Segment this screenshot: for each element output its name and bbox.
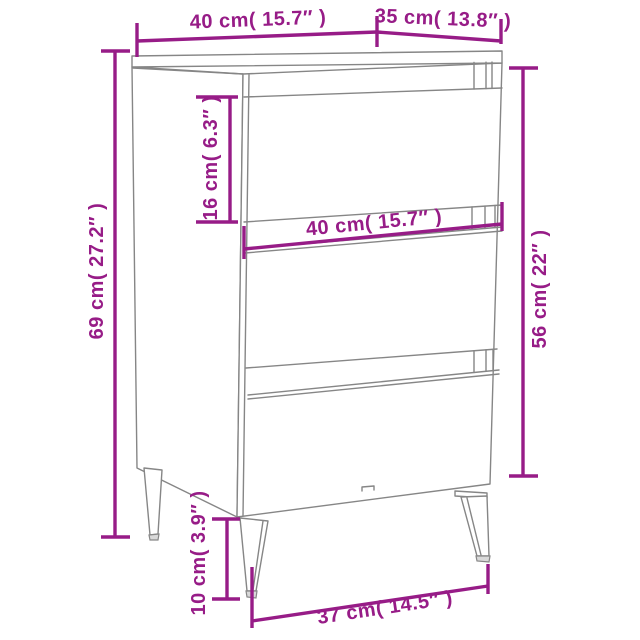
cabinet-leg-front-right: [455, 491, 490, 562]
dim-label-leg-height: 10 cm( 3.9″ ): [188, 490, 210, 615]
cabinet-leg-front-left: [240, 518, 268, 598]
dim-label-total-height: 69 cm( 27.2″ ): [86, 203, 108, 340]
cabinet-front-face: [237, 63, 502, 517]
cabinet-leg-back-left: [144, 468, 162, 540]
dim-total-height: 69 cm( 27.2″ ): [86, 51, 130, 537]
product-dimension-image: 40 cm( 15.7″ ) 35 cm( 13.8″ ) 69 cm( 27.…: [0, 0, 640, 640]
cabinet-side-panel: [132, 67, 243, 517]
dim-drawer-height: 16 cm( 6.3″ ): [196, 95, 238, 222]
dim-label-drawer-height: 16 cm( 6.3″ ): [200, 95, 222, 220]
dim-leg-span: 37 cm( 14.5″ ): [252, 564, 488, 629]
cabinet-top-slab: [132, 51, 502, 67]
dim-top-width: 40 cm( 15.7″ ): [137, 6, 377, 57]
dim-label-top-depth: 35 cm( 13.8″ ): [374, 5, 511, 33]
dim-line-top-depth: [377, 32, 501, 41]
dim-label-leg-span: 37 cm( 14.5″ ): [316, 587, 454, 629]
dim-label-body-height: 56 cm( 22″ ): [529, 230, 551, 349]
diagram-canvas: 40 cm( 15.7″ ) 35 cm( 13.8″ ) 69 cm( 27.…: [0, 0, 640, 640]
dim-line-top-width: [137, 32, 377, 41]
dim-body-height: 56 cm( 22″ ): [509, 68, 551, 476]
dim-label-top-width: 40 cm( 15.7″ ): [189, 6, 326, 33]
dim-top-depth: 35 cm( 13.8″ ): [374, 5, 511, 44]
